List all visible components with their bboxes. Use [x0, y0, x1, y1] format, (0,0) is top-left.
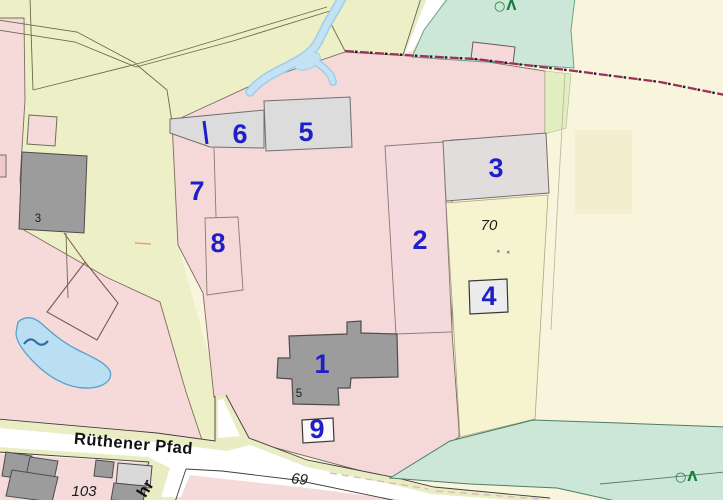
area-label-5: 5 [298, 117, 313, 147]
house-number-3: 3 [35, 213, 41, 225]
building-3 [19, 152, 87, 233]
area-label-8: 8 [210, 228, 225, 258]
parcel-number-70: 70 [481, 217, 498, 234]
area-label-9: 9 [309, 414, 324, 444]
orange-mark [135, 243, 151, 244]
survey-dot [507, 251, 510, 254]
area-label-4: 4 [481, 281, 496, 311]
small-parcel [27, 115, 57, 146]
area-label-7: 7 [189, 176, 204, 206]
survey-dot [497, 250, 500, 253]
map-canvas[interactable]: 1 2 3 4 5 6 7 8 9 3 5 69 70 103 Rüthener… [0, 0, 723, 500]
cadastral-map[interactable]: 1 2 3 4 5 6 7 8 9 3 5 69 70 103 Rüthener… [0, 0, 723, 500]
area-label-2: 2 [412, 225, 427, 255]
tree-symbol-icon: ○Λ [675, 470, 698, 485]
tree-symbol-icon: ○Λ [494, 0, 517, 14]
house-number-5: 5 [296, 388, 302, 400]
northeast-road [402, 0, 575, 68]
parcel-number-69: 69 [290, 470, 309, 489]
edge-parcel [0, 155, 6, 177]
parcel-number-103: 103 [71, 483, 97, 500]
building [94, 460, 114, 478]
area-label-6: 6 [232, 119, 247, 149]
area-label-3: 3 [488, 153, 503, 183]
area-label-1: 1 [314, 349, 329, 379]
parcel-shade [575, 130, 632, 214]
